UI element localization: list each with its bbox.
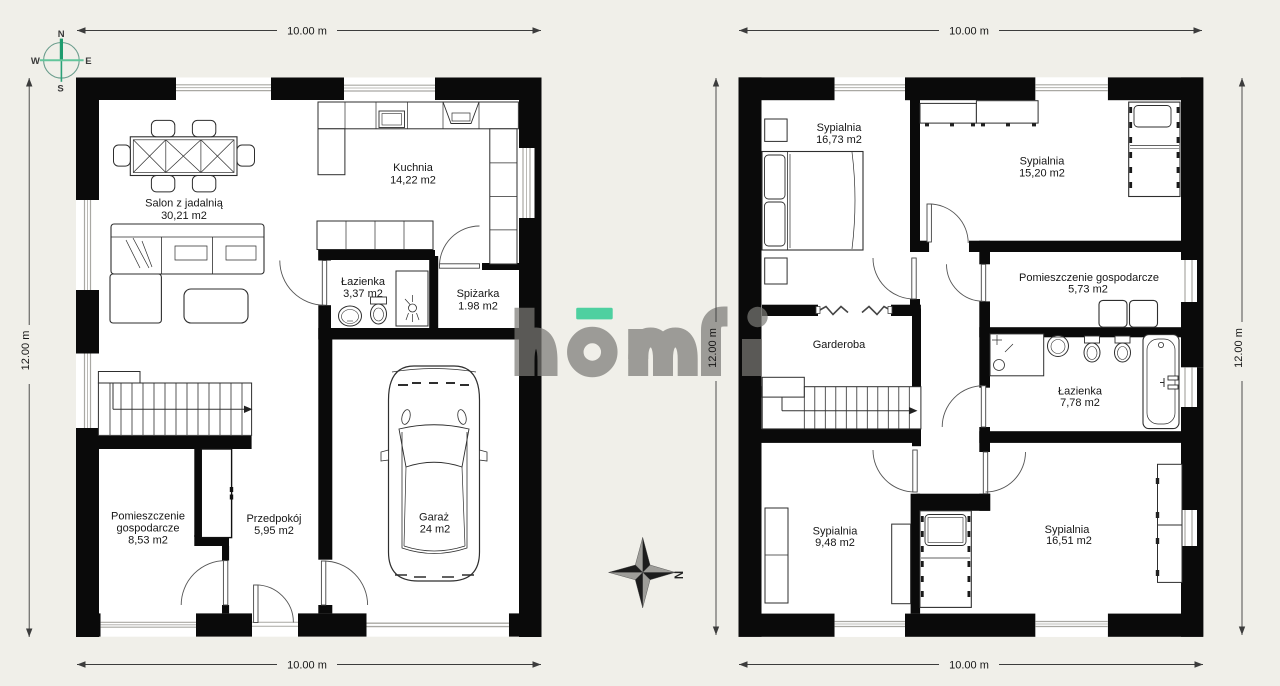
svg-text:12.00 m: 12.00 m (20, 331, 32, 371)
svg-text:N: N (58, 29, 65, 40)
svg-text:16,73 m2: 16,73 m2 (816, 134, 862, 146)
svg-text:8,53 m2: 8,53 m2 (128, 535, 168, 547)
svg-text:9,48 m2: 9,48 m2 (815, 537, 855, 549)
svg-text:Garaż: Garaż (419, 512, 449, 524)
svg-text:S: S (57, 84, 63, 95)
svg-text:Kuchnia: Kuchnia (393, 162, 434, 174)
svg-text:3,37 m2: 3,37 m2 (343, 288, 383, 300)
svg-text:gospodarcze: gospodarcze (117, 523, 180, 535)
svg-text:5,73 m2: 5,73 m2 (1068, 284, 1108, 296)
svg-text:10.00 m: 10.00 m (949, 660, 989, 672)
svg-text:16,51 m2: 16,51 m2 (1046, 535, 1092, 547)
svg-text:Salon z jadalnią: Salon z jadalnią (145, 198, 224, 210)
svg-text:12.00 m: 12.00 m (707, 328, 719, 368)
svg-text:10.00 m: 10.00 m (287, 660, 327, 672)
svg-text:Łazienka: Łazienka (1058, 386, 1103, 398)
svg-text:Spiżarka: Spiżarka (457, 288, 501, 300)
svg-text:E: E (85, 56, 91, 67)
svg-text:Pomieszczenie gospodarcze: Pomieszczenie gospodarcze (1019, 272, 1159, 284)
svg-text:Sypialnia: Sypialnia (817, 122, 863, 134)
svg-text:7,78 m2: 7,78 m2 (1060, 397, 1100, 409)
svg-text:Pomieszczenie: Pomieszczenie (111, 511, 185, 523)
svg-text:15,20 m2: 15,20 m2 (1019, 168, 1065, 180)
svg-text:14,22 m2: 14,22 m2 (390, 175, 436, 187)
svg-text:5,95 m2: 5,95 m2 (254, 525, 294, 537)
svg-text:Sypialnia: Sypialnia (813, 526, 859, 538)
svg-text:12.00 m: 12.00 m (1233, 328, 1245, 368)
svg-text:Łazienka: Łazienka (341, 276, 386, 288)
svg-text:Sypialnia: Sypialnia (1020, 156, 1066, 168)
svg-text:Garderoba: Garderoba (813, 339, 866, 351)
svg-text:10.00 m: 10.00 m (287, 26, 327, 38)
svg-text:24 m2: 24 m2 (420, 524, 451, 536)
svg-text:1.98 m2: 1.98 m2 (458, 301, 498, 313)
svg-text:N: N (672, 571, 684, 579)
svg-text:Przedpokój: Przedpokój (246, 513, 301, 525)
svg-text:10.00 m: 10.00 m (949, 26, 989, 38)
svg-text:30,21 m2: 30,21 m2 (161, 210, 207, 222)
svg-text:W: W (31, 56, 40, 67)
